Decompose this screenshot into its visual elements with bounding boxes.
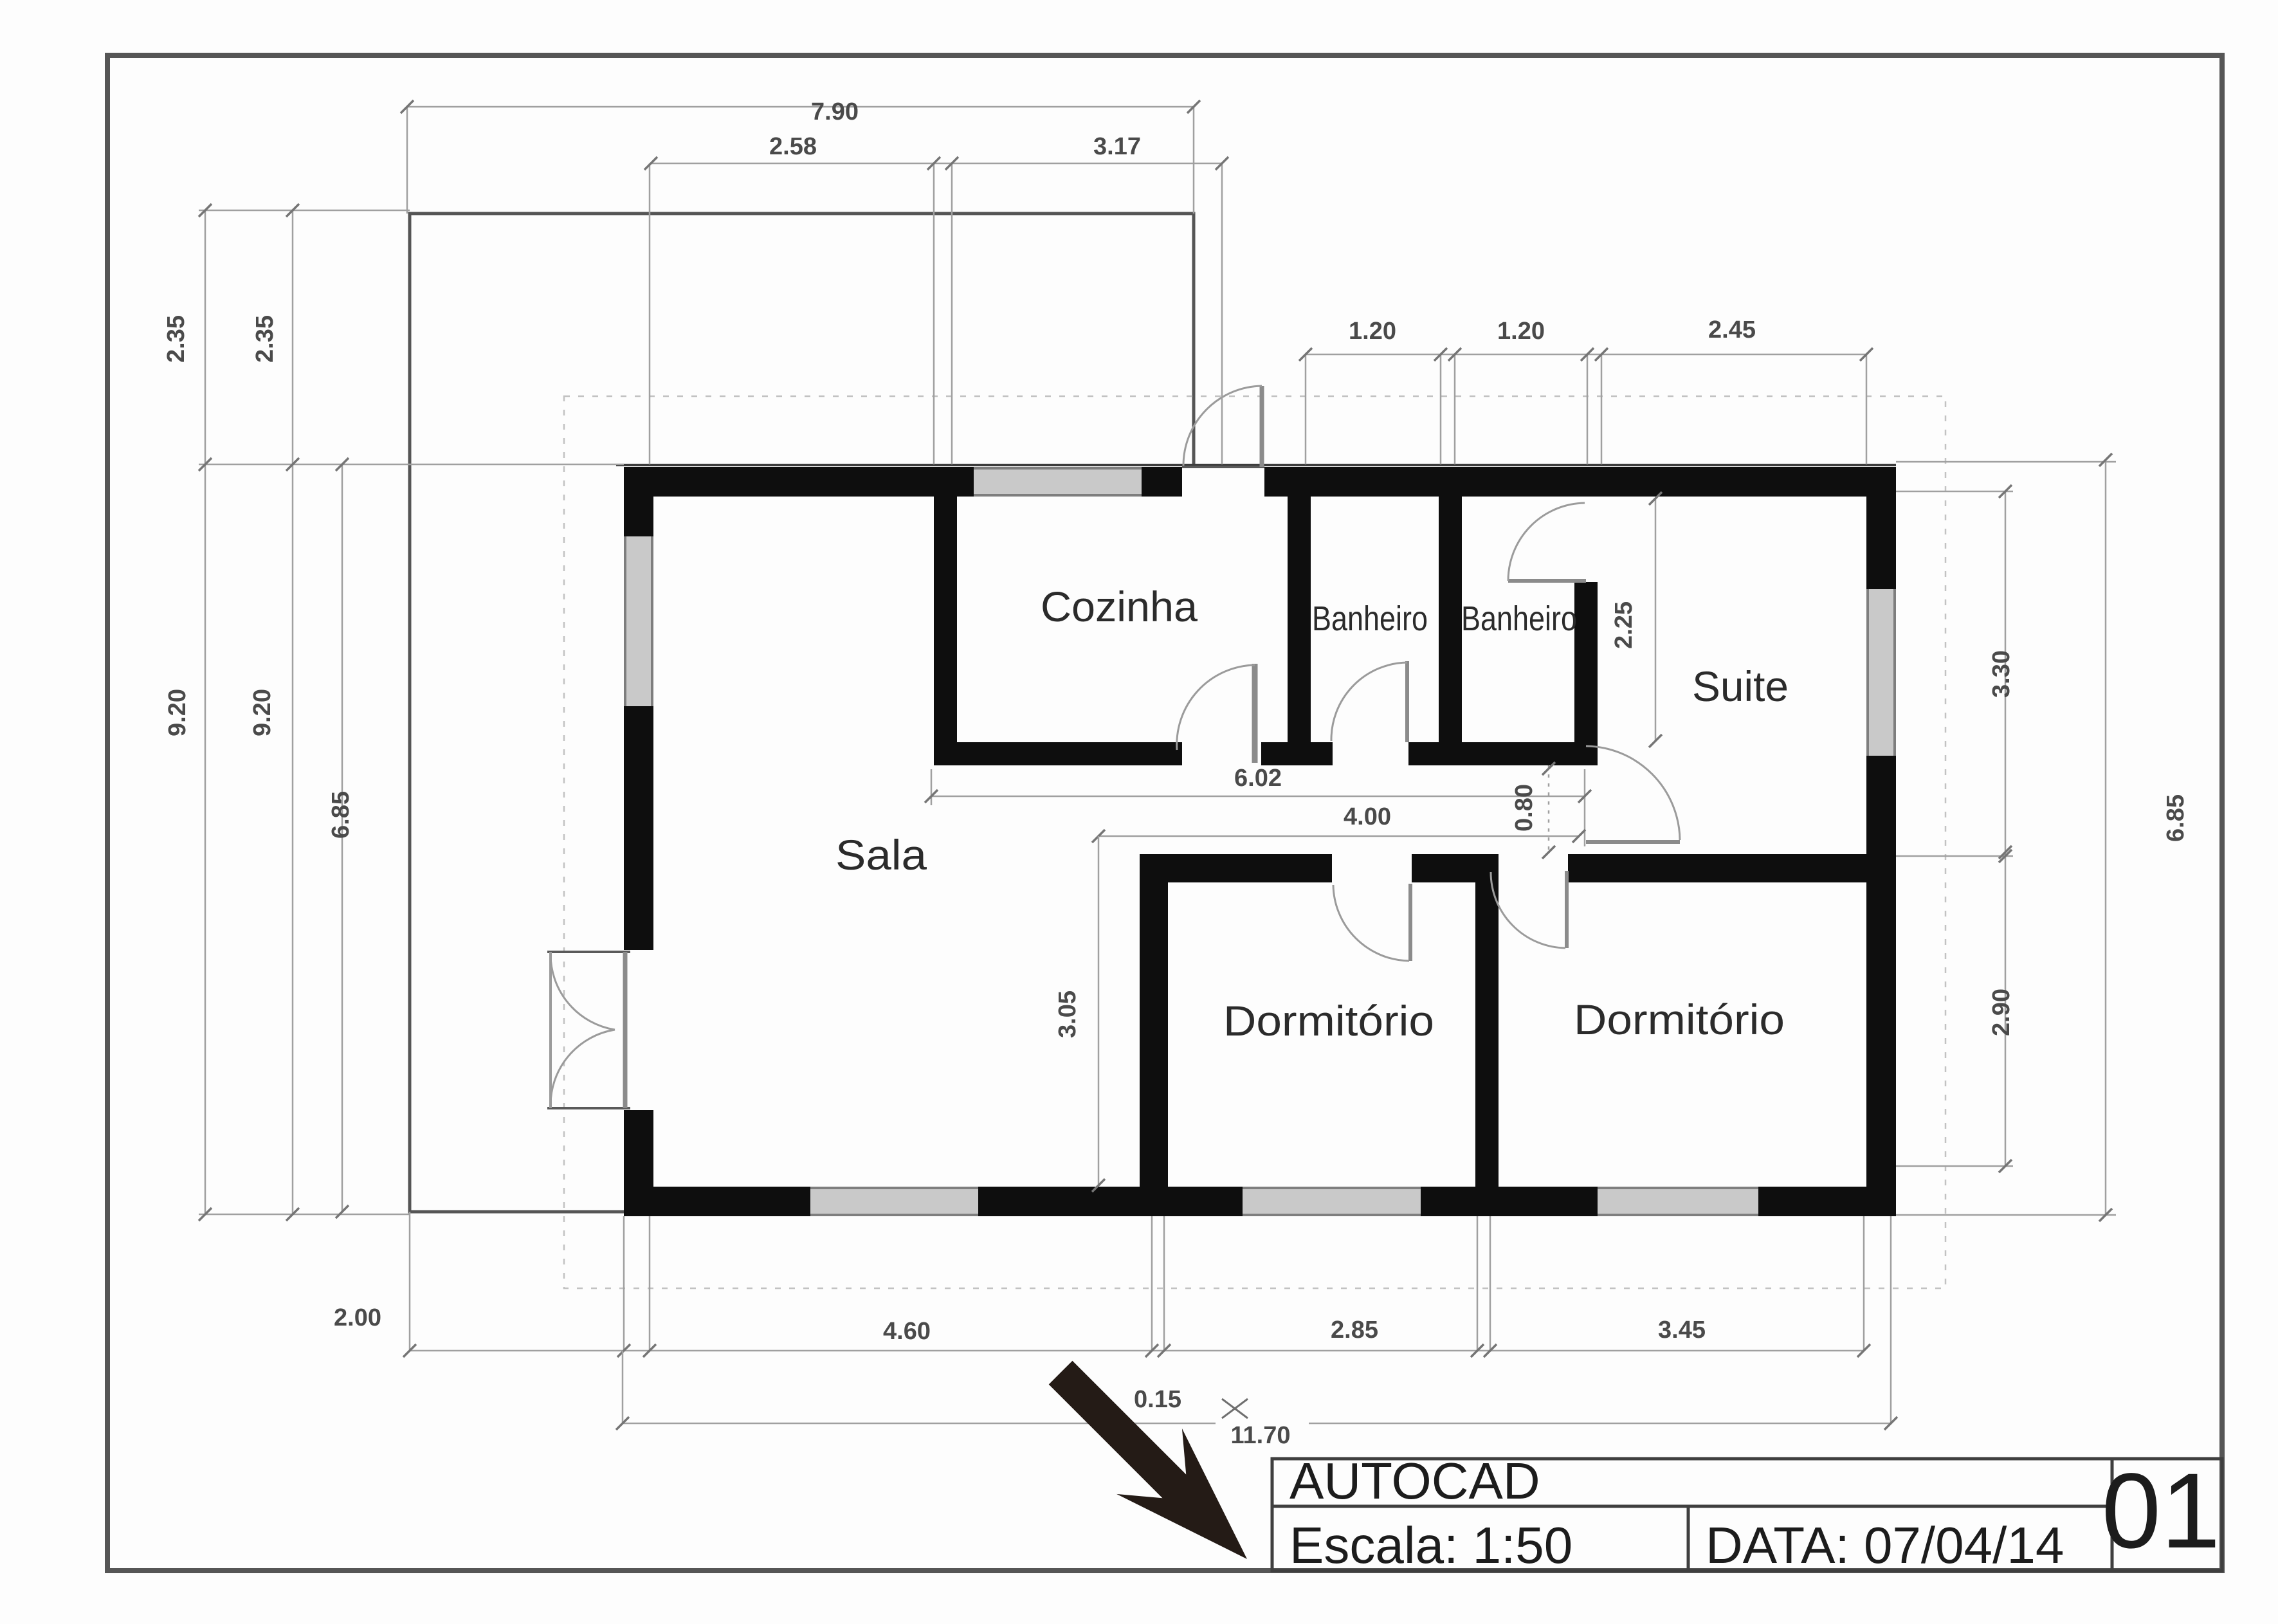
svg-text:2.58: 2.58 (769, 133, 817, 160)
svg-text:3.45: 3.45 (1658, 1317, 1706, 1344)
svg-text:01: 01 (2102, 1452, 2221, 1571)
svg-text:6.85: 6.85 (2162, 794, 2189, 842)
svg-text:Dormitório: Dormitório (1223, 997, 1434, 1045)
svg-text:Banheiro: Banheiro (1312, 599, 1428, 638)
svg-text:6.02: 6.02 (1234, 765, 1282, 792)
svg-text:3.05: 3.05 (1054, 990, 1081, 1038)
svg-text:9.20: 9.20 (249, 689, 276, 736)
svg-text:Dormitório: Dormitório (1574, 996, 1785, 1043)
svg-text:9.20: 9.20 (164, 689, 191, 736)
svg-text:2.00: 2.00 (334, 1304, 381, 1331)
svg-text:6.85: 6.85 (327, 791, 354, 839)
svg-text:4.60: 4.60 (883, 1318, 931, 1345)
svg-text:Escala: 1:50: Escala: 1:50 (1289, 1517, 1572, 1574)
svg-text:Cozinha: Cozinha (1041, 583, 1198, 630)
svg-text:2.85: 2.85 (1331, 1317, 1378, 1344)
svg-text:2.90: 2.90 (1988, 989, 2015, 1036)
svg-text:1.20: 1.20 (1497, 318, 1545, 345)
svg-text:11.70: 11.70 (1231, 1422, 1291, 1449)
svg-text:2.35: 2.35 (251, 315, 278, 363)
svg-text:2.45: 2.45 (1708, 316, 1756, 343)
svg-text:0.80: 0.80 (1511, 784, 1538, 832)
svg-text:Banheiro: Banheiro (1461, 599, 1577, 638)
svg-text:0.15: 0.15 (1134, 1386, 1181, 1413)
svg-text:2.35: 2.35 (163, 315, 190, 363)
svg-text:3.30: 3.30 (1988, 650, 2015, 698)
svg-text:2.25: 2.25 (1610, 601, 1637, 649)
svg-text:4.00: 4.00 (1344, 803, 1391, 830)
svg-text:7.90: 7.90 (811, 98, 859, 125)
svg-text:AUTOCAD: AUTOCAD (1289, 1452, 1540, 1510)
svg-text:1.20: 1.20 (1349, 318, 1396, 345)
svg-text:Suite: Suite (1692, 662, 1789, 710)
svg-text:Sala: Sala (835, 831, 927, 879)
svg-text:DATA: 07/04/14: DATA: 07/04/14 (1706, 1517, 2064, 1574)
svg-text:3.17: 3.17 (1093, 133, 1141, 160)
